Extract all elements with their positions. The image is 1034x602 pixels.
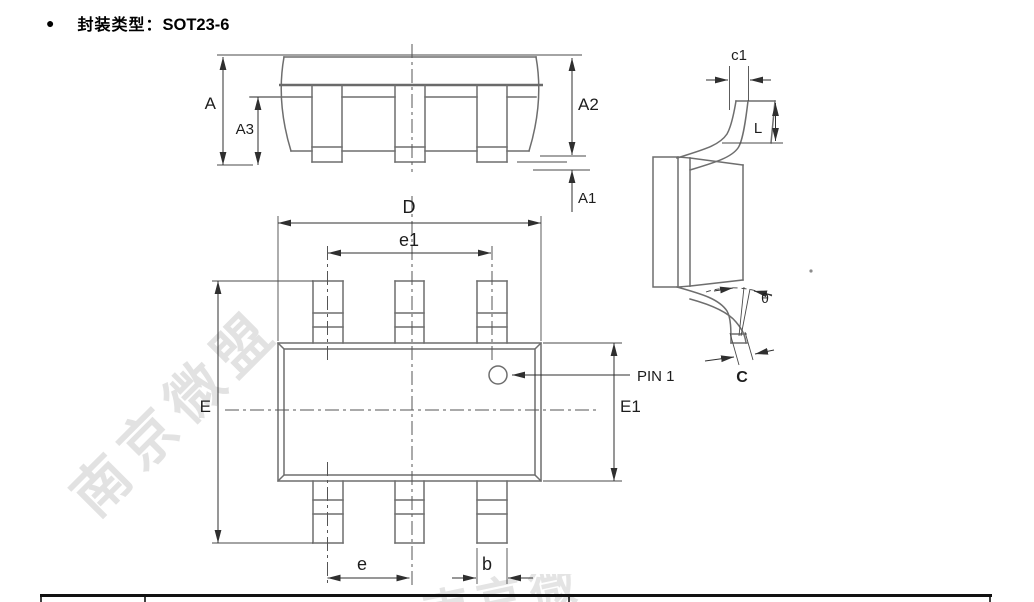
datasheet-package-outline-page: ●封装类型：SOT23-6 南京微盟 南京微盟 <box>0 0 1034 602</box>
section-title: ●封装类型：SOT23-6 <box>46 11 229 35</box>
top-view-outline <box>225 196 598 589</box>
dim-label-e: e <box>357 554 367 574</box>
dim-label-E: E <box>200 397 211 416</box>
dim-label-b: b <box>482 554 492 574</box>
package-type-label: 封装类型： <box>77 17 162 34</box>
pin1-marker-circle <box>489 366 507 384</box>
pin1-label: PIN 1 <box>637 368 675 385</box>
front-view-dimensions: A A3 A2 A1 <box>205 55 599 212</box>
top-view-dimensions: D e1 E E1 PIN 1 e b <box>200 197 675 584</box>
dim-label-A1: A1 <box>578 190 596 207</box>
dim-label-A2: A2 <box>578 95 599 114</box>
bullet-icon: ● <box>46 15 54 31</box>
dim-label-E1: E1 <box>620 397 641 416</box>
package-type-value: SOT23-6 <box>162 16 229 34</box>
dim-label-L: L <box>754 120 762 137</box>
stray-dot <box>809 269 812 272</box>
dim-label-D: D <box>403 197 416 217</box>
dim-label-e1: e1 <box>399 230 419 250</box>
dim-label-A3: A3 <box>236 121 254 138</box>
top-view: D e1 E E1 PIN 1 e b <box>200 196 675 589</box>
front-view: A A3 A2 A1 <box>205 44 599 212</box>
side-view-outline <box>653 101 813 343</box>
dim-label-A: A <box>205 94 217 113</box>
package-outline-drawing: A A3 A2 A1 <box>0 0 1034 602</box>
dim-label-theta: θ <box>761 290 769 306</box>
front-view-outline <box>250 44 543 172</box>
dim-label-c: C <box>736 369 748 386</box>
dimension-table-top-edge <box>40 594 992 602</box>
side-view: c1 L θ C <box>653 47 813 386</box>
dim-label-c1: c1 <box>731 47 747 64</box>
